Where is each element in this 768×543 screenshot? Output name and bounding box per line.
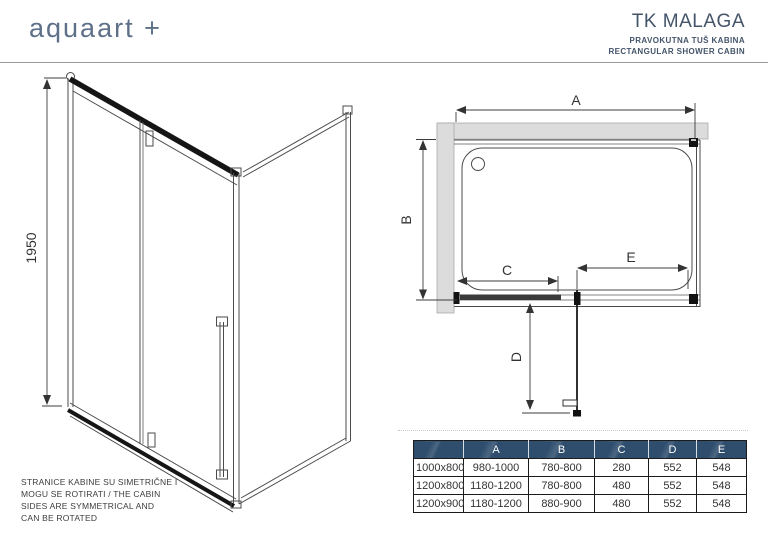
table-header-cell: A (464, 441, 529, 459)
table-cell: 548 (697, 495, 747, 513)
dotted-divider (398, 430, 748, 431)
wall-left (437, 123, 454, 313)
table-header-cell (414, 441, 464, 459)
symmetry-note: STRANICE KABINE SU SIMETRIČNE I MOGU SE … (21, 476, 177, 524)
dimension-d: D (508, 304, 570, 413)
table-cell-size: 1200x800 (414, 477, 464, 495)
door-handle (217, 317, 228, 479)
door-end-cap (573, 410, 581, 417)
walls (437, 123, 708, 313)
elevation-drawing: 1950 (0, 63, 400, 543)
table-header-cell: D (649, 441, 697, 459)
table-cell: 780-800 (529, 477, 595, 495)
table-cell: 548 (697, 459, 747, 477)
front-panel (67, 73, 242, 513)
size-table: A B C D E 1000x800 980-1000 780-800 280 … (413, 440, 747, 513)
door-handle-plan (563, 400, 577, 406)
table-header-cell: E (697, 441, 747, 459)
table-cell: 780-800 (529, 459, 595, 477)
door-roller-bottom (148, 433, 155, 447)
height-dimension-label: 1950 (23, 232, 39, 263)
table-row: 1200x900 1180-1200 880-900 480 552 548 (414, 495, 747, 513)
table-row: 1200x800 1180-1200 780-800 480 552 548 (414, 477, 747, 495)
sliding-door-closed (460, 295, 561, 301)
side-panel (239, 106, 352, 504)
table-cell: 1180-1200 (464, 495, 529, 513)
wall-profile-clamp-bottom-left (454, 292, 460, 304)
table-cell: 880-900 (529, 495, 595, 513)
height-dimension: 1950 (23, 78, 66, 406)
table-cell: 480 (595, 495, 649, 513)
table-cell: 552 (649, 495, 697, 513)
table-row: 1000x800 980-1000 780-800 280 552 548 (414, 459, 747, 477)
table-cell: 280 (595, 459, 649, 477)
title-block: TK MALAGA PRAVOKUTNA TUŠ KABINA RECTANGU… (608, 11, 745, 57)
table-cell: 552 (649, 477, 697, 495)
spec-sheet: aquaart + TK MALAGA PRAVOKUTNA TUŠ KABIN… (0, 0, 768, 543)
table-cell: 548 (697, 477, 747, 495)
plan-drawing: A B C E D (400, 63, 768, 443)
table-cell-size: 1200x900 (414, 495, 464, 513)
dimension-b-label: B (398, 215, 414, 224)
wall-top (437, 123, 708, 139)
table-cell: 480 (595, 477, 649, 495)
table-header-cell: B (529, 441, 595, 459)
product-title: TK MALAGA (608, 11, 745, 33)
drain-circle (472, 158, 485, 171)
brand-logo: aquaart + (29, 13, 162, 44)
dimension-d-label: D (508, 352, 524, 362)
dimension-a-label: A (571, 92, 581, 108)
table-cell: 1180-1200 (464, 477, 529, 495)
product-subtitle-hr: PRAVOKUTNA TUŠ KABINA (608, 35, 745, 46)
corner-clamp-bottom-right (689, 294, 698, 304)
product-subtitle-en: RECTANGULAR SHOWER CABIN (608, 46, 745, 57)
door-pivot (574, 292, 581, 305)
table-cell: 980-1000 (464, 459, 529, 477)
dimension-e-label: E (626, 249, 635, 265)
dimension-e: E (577, 249, 688, 289)
table-header-cell: C (595, 441, 649, 459)
dimension-c-label: C (502, 262, 512, 278)
door-open (563, 290, 581, 417)
shower-tray (462, 148, 692, 290)
table-header-row: A B C D E (414, 441, 747, 459)
table-cell: 552 (649, 459, 697, 477)
table-cell-size: 1000x800 (414, 459, 464, 477)
